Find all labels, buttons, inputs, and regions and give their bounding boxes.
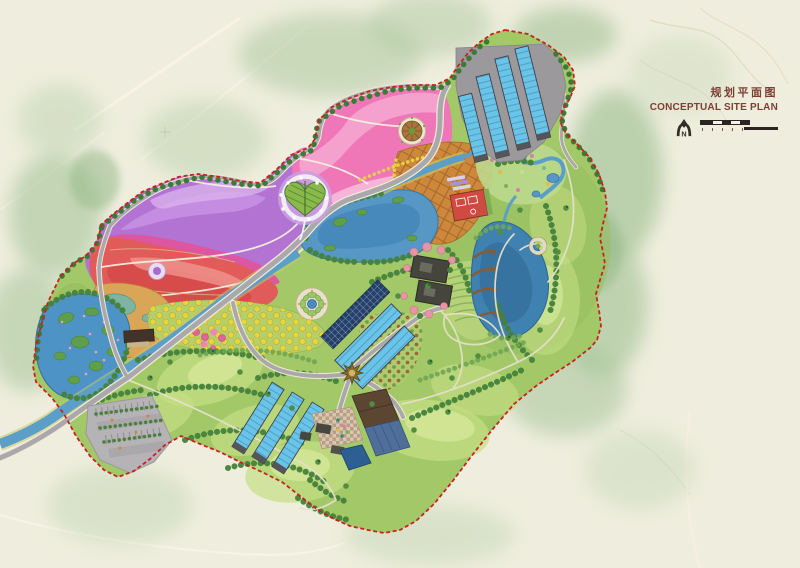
north-label: N bbox=[681, 130, 686, 138]
title-chinese: 规划平面图 bbox=[588, 84, 778, 100]
north-arrow-icon: N bbox=[675, 118, 693, 138]
title-block: 规划平面图 CONCEPTUAL SITE PLAN N bbox=[588, 84, 778, 138]
pond bbox=[547, 174, 559, 183]
east-ring-feature bbox=[529, 237, 547, 255]
mandala-garden bbox=[296, 288, 328, 320]
sunflower-plaza bbox=[399, 117, 426, 145]
west-plaza-circle bbox=[149, 263, 166, 280]
star-roundabout bbox=[341, 362, 363, 384]
title-english: CONCEPTUAL SITE PLAN bbox=[588, 102, 778, 113]
scale-bar bbox=[700, 120, 778, 136]
conceptual-site-plan-page: 规划平面图 CONCEPTUAL SITE PLAN N bbox=[0, 0, 800, 568]
